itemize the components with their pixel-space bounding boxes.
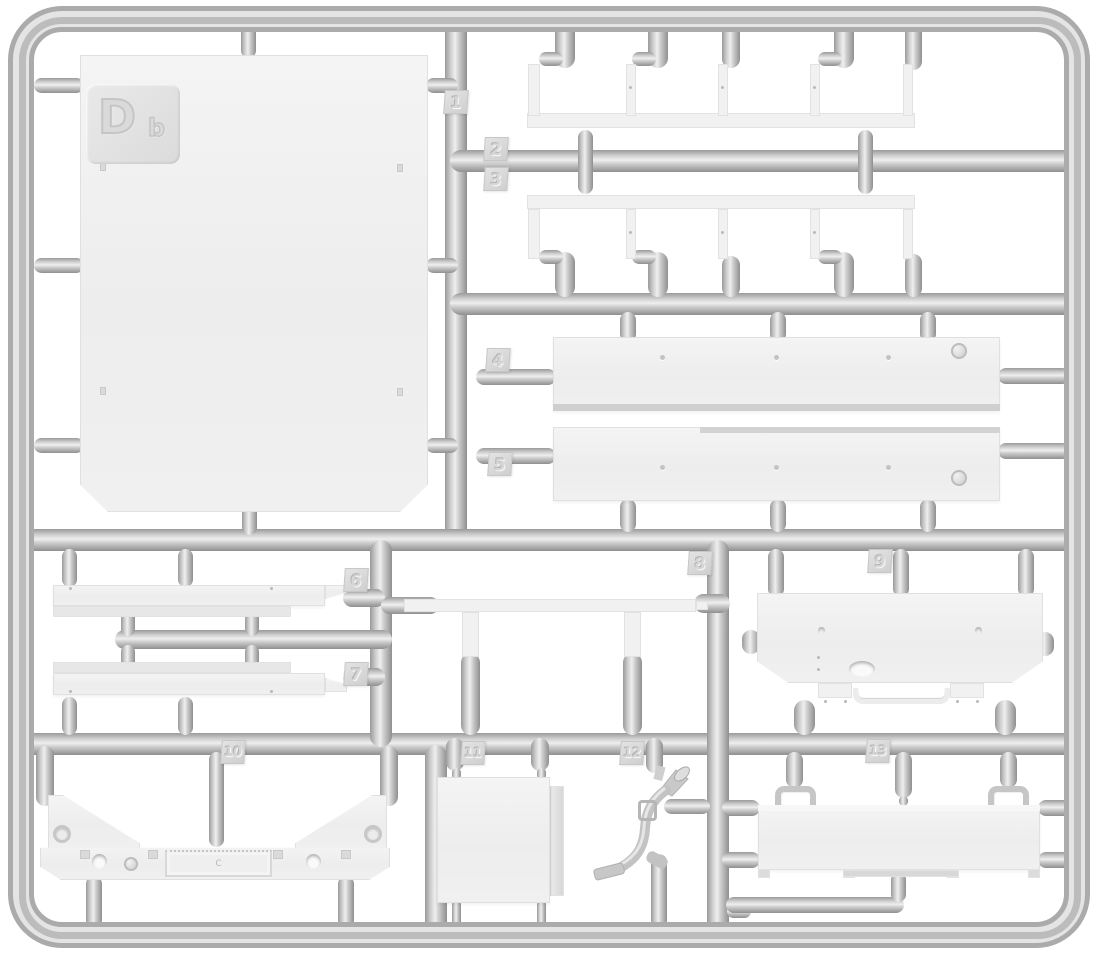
sprue-gate — [178, 549, 193, 587]
sprue-runner — [20, 529, 1080, 551]
bin-top-edge — [758, 805, 1040, 811]
panel-oval-hole — [849, 661, 875, 677]
tag-label: 1 — [450, 93, 462, 112]
part-9-bulkhead-panel — [757, 593, 1043, 683]
sprue-gate — [1018, 549, 1034, 597]
sprue-gate — [726, 897, 904, 913]
panel-boss — [951, 470, 967, 486]
part-12-exhaust-pipe — [585, 735, 735, 935]
sprue-gate — [623, 653, 642, 735]
sprue-gate — [722, 256, 740, 297]
part-3-stanchion — [903, 209, 913, 259]
sprue-gate — [995, 700, 1016, 735]
tag-label: 3 — [490, 170, 502, 189]
part-11-access-panel — [437, 777, 550, 903]
part-number-tag-12: 12 — [619, 741, 645, 765]
part-6-step-strip-lip — [53, 606, 291, 617]
sprue-gate — [34, 78, 84, 93]
sprue-gate — [531, 738, 549, 771]
sprue-gate — [426, 438, 458, 453]
sprue-gate — [426, 258, 458, 273]
sprue-gate — [905, 20, 922, 70]
part-2-stanchion — [903, 64, 913, 116]
panel-clip-mark — [397, 388, 403, 396]
tag-label: 9 — [874, 552, 886, 571]
license-plate-mark: C — [215, 859, 221, 869]
license-plate-recess: C — [165, 850, 272, 877]
sprue-gate — [209, 752, 224, 847]
sprue-gate — [241, 18, 256, 58]
part-5-side-panel — [553, 427, 1000, 501]
crank-hole — [124, 857, 138, 871]
part-8-tab — [462, 612, 479, 657]
part-number-tag-10: 10 — [220, 740, 246, 764]
sprue-gate — [768, 549, 784, 597]
part-13-stowage-bin — [758, 805, 1040, 870]
sprue-gate — [818, 250, 842, 264]
part-13-foot — [758, 869, 770, 878]
part-8-pin — [696, 601, 708, 610]
part-3-stanchion — [626, 209, 636, 259]
sprue-code-label: D b — [86, 84, 180, 164]
sprue-gate — [722, 22, 740, 68]
sprue-gate — [1038, 800, 1080, 816]
sprue-gate — [62, 697, 77, 735]
part-number-tag-11: 11 — [460, 741, 486, 765]
part-7-step-strip — [53, 673, 325, 695]
part-9-step-channel — [853, 688, 950, 704]
part-number-tag-1: 1 — [443, 90, 469, 114]
sprue-gate — [34, 438, 84, 453]
part-13-bottom-rail — [843, 870, 959, 877]
part-number-tag-9: 9 — [867, 549, 893, 573]
part-2-stanchion — [528, 64, 540, 116]
tag-label: 12 — [622, 746, 641, 761]
part-3-rail — [527, 195, 915, 209]
sprue-gate — [1000, 752, 1017, 788]
part-4-side-panel — [553, 337, 1000, 411]
sprue-gate — [578, 130, 593, 194]
sprue-gate — [893, 549, 909, 597]
sprue-gate — [858, 130, 873, 194]
tag-label: 7 — [350, 665, 362, 684]
sprue-gate — [998, 368, 1070, 384]
tag-label: 13 — [868, 744, 887, 759]
part-number-tag-13: 13 — [865, 739, 891, 763]
bumper-wing-hole — [364, 825, 382, 843]
part-9-bracket — [950, 683, 984, 698]
sprue-gate — [34, 258, 84, 273]
part-number-tag-8: 8 — [687, 551, 713, 575]
bumper-wing-hole — [53, 825, 71, 843]
part-3-stanchion — [528, 209, 540, 259]
sprue-gate — [770, 499, 786, 532]
sprue-gate — [539, 52, 563, 66]
sprue-gate — [539, 250, 563, 264]
sprue-runner — [450, 293, 1090, 315]
part-8-thin-strip — [404, 599, 696, 612]
part-2-stanchion — [626, 64, 636, 116]
tag-label: 4 — [492, 351, 504, 370]
sprue-gate — [920, 499, 936, 532]
sprue-gate — [895, 752, 912, 798]
sprue-gate — [905, 254, 922, 297]
sprue-photo: D b — [0, 0, 1100, 959]
sprue-gate — [620, 499, 636, 532]
part-2-stanchion — [810, 64, 820, 116]
part-number-tag-3: 3 — [483, 167, 509, 191]
sprue-gate — [62, 549, 77, 587]
part-13-foot — [1028, 869, 1040, 878]
part-3-stanchion — [718, 209, 728, 259]
sprue-gate — [178, 697, 193, 735]
sprue-gate — [786, 752, 803, 788]
tag-label: 10 — [223, 745, 242, 760]
sprue-code-letter: D — [98, 90, 136, 144]
panel-clip-mark — [100, 163, 106, 171]
part-3-stanchion — [810, 209, 820, 259]
tag-label: 6 — [350, 571, 362, 590]
part-7-step-strip-lip — [53, 662, 291, 673]
sprue-gate — [1038, 852, 1080, 868]
part-6-step-strip — [53, 585, 325, 606]
panel-top-edge — [700, 427, 1000, 433]
panel-clip-mark — [397, 164, 403, 172]
sprue-gate — [461, 653, 480, 735]
part-number-tag-7: 7 — [343, 662, 369, 686]
part-number-tag-2: 2 — [483, 137, 509, 161]
part-number-tag-4: 4 — [485, 348, 511, 372]
panel-bottom-edge — [553, 404, 1000, 411]
sprue-gate — [818, 52, 842, 66]
part-8-tab — [624, 612, 641, 657]
part-number-tag-5: 5 — [487, 452, 513, 476]
sprue-gate — [998, 443, 1070, 459]
panel-boss — [951, 343, 967, 359]
sprue-runner — [450, 150, 1090, 172]
part-9-bracket — [818, 683, 852, 698]
part-11-ridge — [550, 786, 564, 896]
tag-label: 11 — [463, 746, 482, 761]
sprue-code-sub: b — [148, 114, 165, 142]
sprue-runner — [20, 733, 1080, 755]
tag-label: 8 — [694, 554, 706, 573]
panel-clip-mark — [100, 387, 106, 395]
tag-label: 5 — [494, 455, 506, 474]
part-2-stanchion — [718, 64, 728, 116]
sprue-gate — [794, 700, 815, 735]
sprue-gate — [537, 900, 546, 928]
tag-label: 2 — [490, 140, 502, 159]
sprue-gate — [86, 876, 102, 928]
sprue-gate — [452, 900, 461, 928]
part-number-tag-6: 6 — [343, 568, 369, 592]
pipe-clamp — [638, 800, 657, 821]
sprue-gate — [338, 876, 354, 928]
